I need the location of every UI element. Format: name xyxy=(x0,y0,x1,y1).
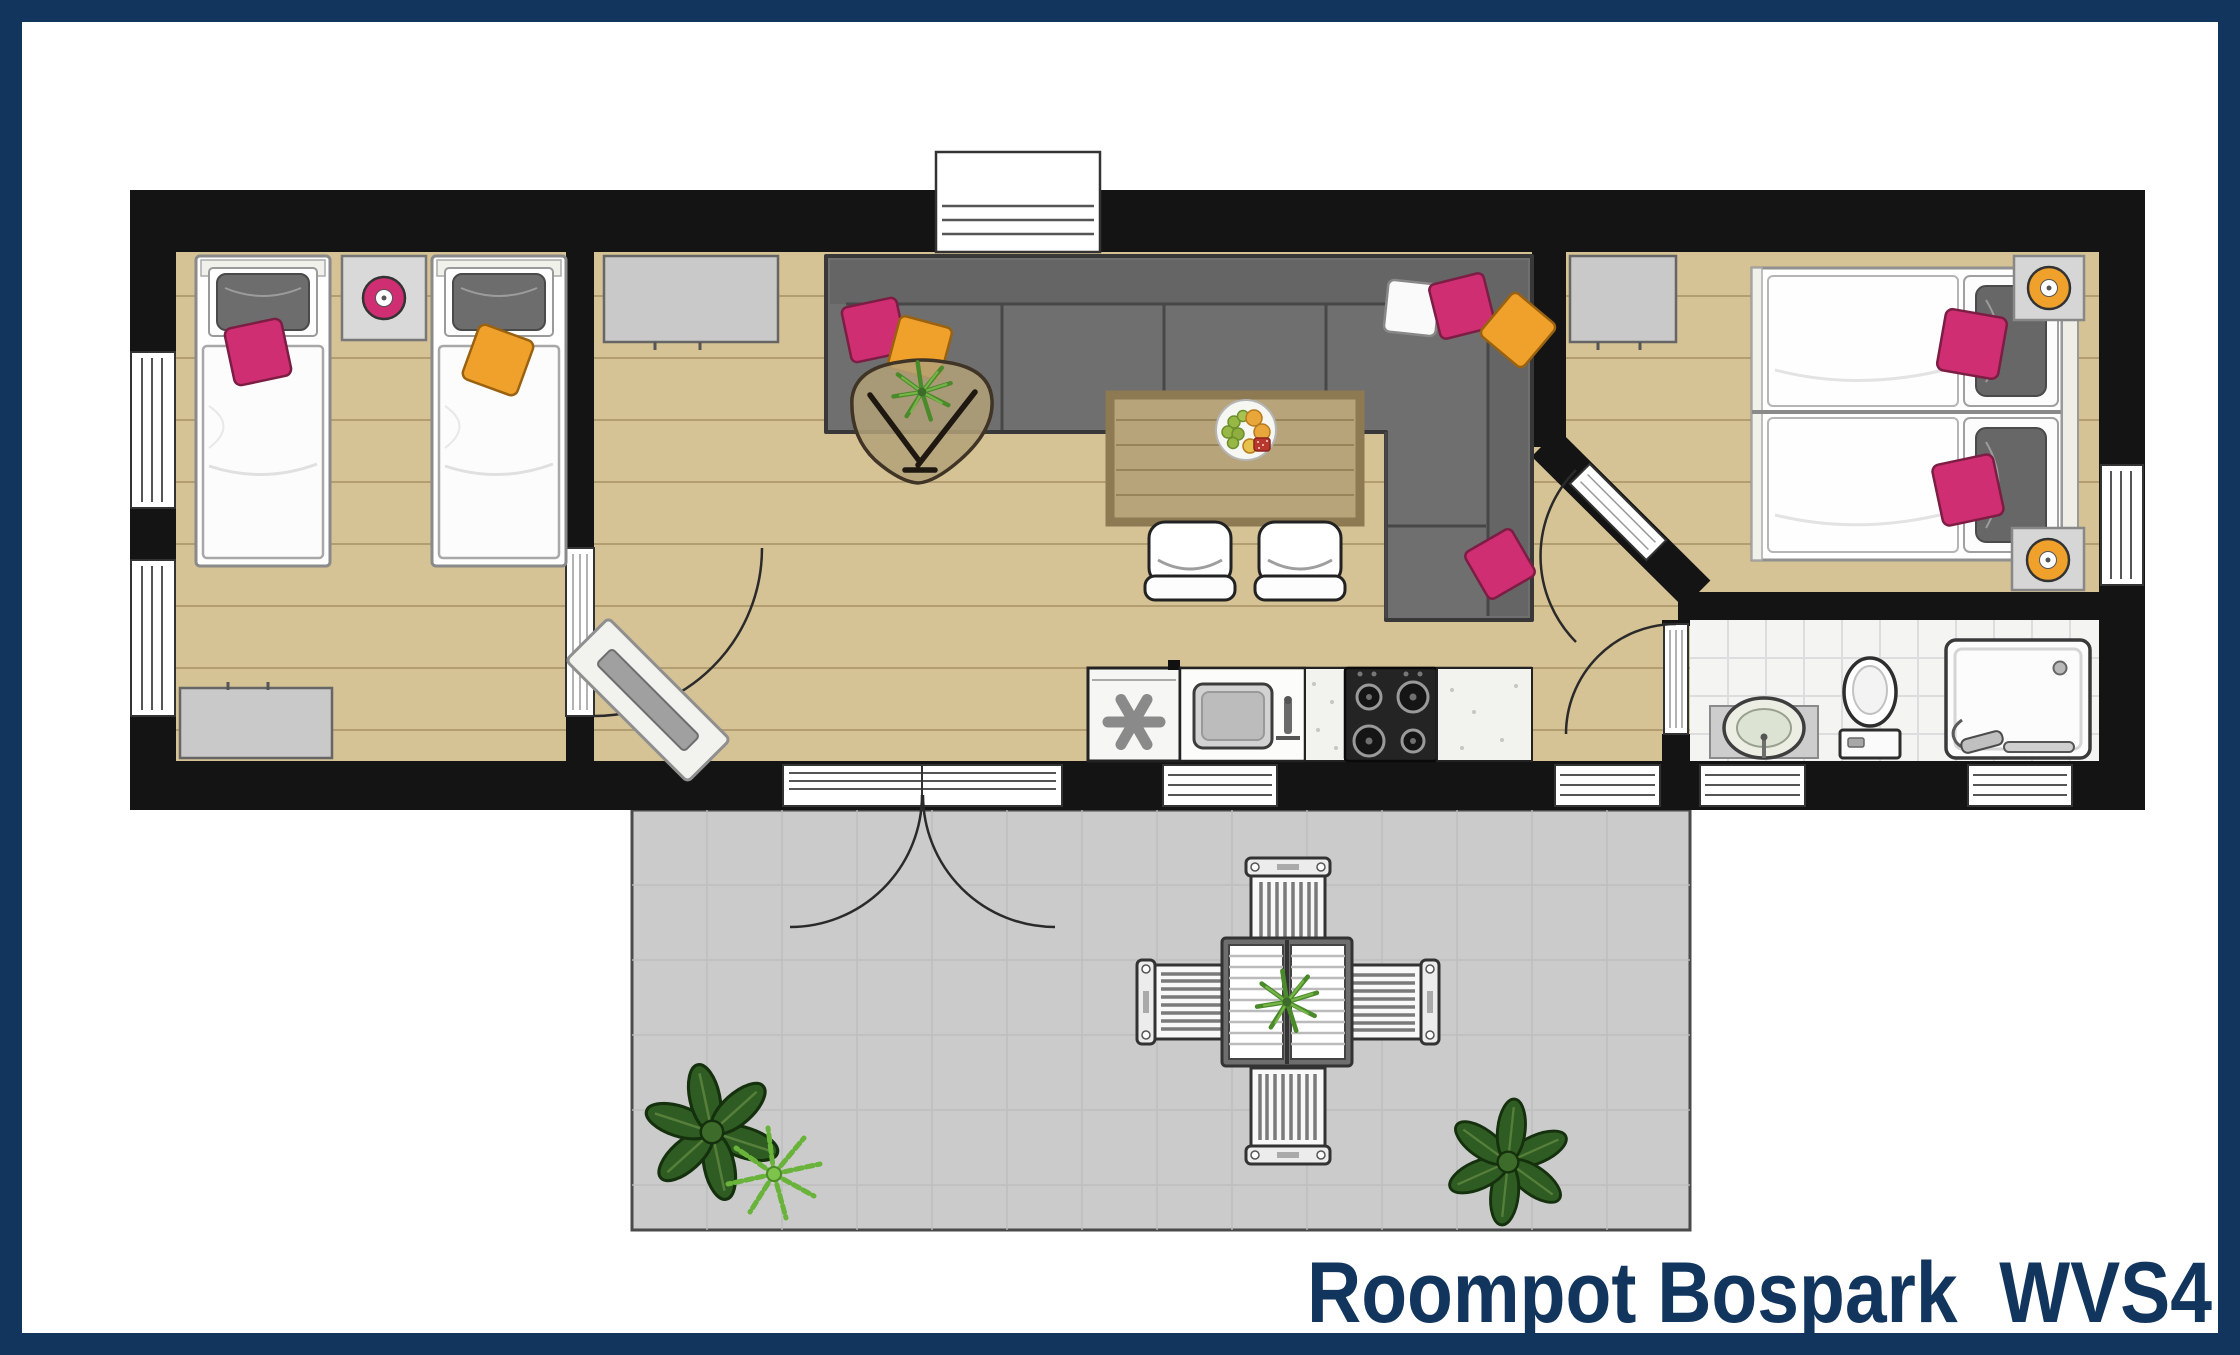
wall-bottom xyxy=(130,761,2145,810)
plan-title: Roompot Bospark WVS4 xyxy=(1307,1245,2212,1341)
pink-table-lamp-icon xyxy=(363,277,405,319)
outdoor-chair-right xyxy=(1343,960,1439,1044)
window-bottom-bathroom-2 xyxy=(1968,765,2072,806)
sink-unit xyxy=(1180,668,1305,761)
window-left-1 xyxy=(131,352,175,508)
nightstand xyxy=(342,256,426,340)
dining-chair-1 xyxy=(1145,522,1235,600)
grab-bar xyxy=(2004,742,2074,752)
bed-pink-cushion-icon xyxy=(1931,453,2005,527)
wardrobe xyxy=(1570,256,1676,350)
cabinet xyxy=(180,682,332,758)
washbasin xyxy=(1710,698,1818,758)
window-left-2 xyxy=(131,560,175,716)
wall-top xyxy=(130,190,2145,252)
drain xyxy=(2054,662,2067,675)
faucet-icon xyxy=(1284,700,1292,734)
wall-bathroom-left-b xyxy=(1662,734,1690,761)
window-bottom-bathroom-1 xyxy=(1700,765,1805,806)
window-bottom-hall xyxy=(1555,765,1660,806)
gas-hob xyxy=(1345,668,1437,761)
single-bed-2 xyxy=(432,256,566,566)
nightstand-bottom xyxy=(2012,528,2084,590)
fruit-bowl-icon xyxy=(1216,400,1276,460)
window-top xyxy=(936,152,1100,252)
outdoor-chair-left xyxy=(1137,960,1233,1044)
sideboard xyxy=(604,256,778,350)
terrace xyxy=(626,810,1690,1244)
single-bed-1 xyxy=(196,256,330,566)
knob xyxy=(1168,660,1180,670)
dishwasher xyxy=(1088,660,1180,761)
window-bottom-kitchen xyxy=(1163,765,1277,806)
wall-bedroom-left-b xyxy=(566,716,594,761)
outdoor-chair-bottom xyxy=(1246,1068,1330,1164)
dining-chair-2 xyxy=(1255,522,1345,600)
toilet xyxy=(1840,658,1900,758)
orange-table-lamp-icon xyxy=(2028,267,2070,309)
floorplan-page: Roompot Bospark WVS4 xyxy=(0,0,2240,1355)
dining-table xyxy=(1110,395,1360,522)
worktop-2 xyxy=(1437,668,1532,761)
wall-bathroom-top xyxy=(1678,592,2099,620)
shower xyxy=(1946,640,2090,758)
kitchen xyxy=(1088,660,1532,761)
orange-table-lamp-icon xyxy=(2027,539,2069,581)
bed-pink-cushion-icon xyxy=(1936,308,2008,380)
outdoor-table xyxy=(1222,938,1352,1066)
window-right xyxy=(2101,465,2143,585)
nightstand-top xyxy=(2014,256,2084,320)
worktop-1 xyxy=(1305,668,1345,761)
pink-cushion-icon xyxy=(224,318,293,387)
wall-bedroom-left-a xyxy=(566,252,594,548)
